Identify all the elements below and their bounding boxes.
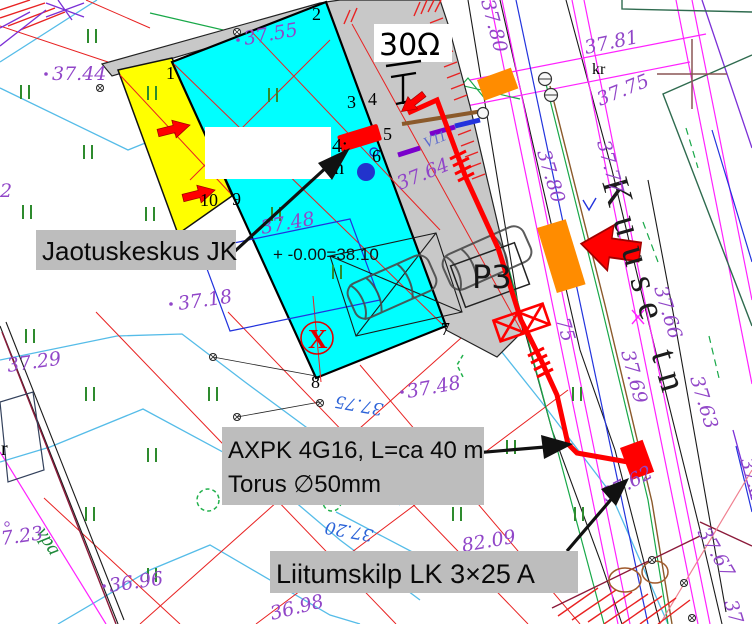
edge-fragment-2: r bbox=[1, 438, 8, 460]
corner-3: 3 bbox=[347, 92, 356, 112]
corner-10: 10 bbox=[200, 190, 218, 210]
elevation-36-96: 36.96 bbox=[108, 568, 165, 597]
label-axpk: AXPK 4G16, L=ca 40 m Torus ∅50mm bbox=[222, 427, 484, 505]
parking-label: P3 bbox=[472, 258, 512, 296]
x-marker-text: X bbox=[308, 324, 328, 354]
corner-5: 5 bbox=[383, 124, 392, 144]
street-name: Kuuse tn bbox=[593, 173, 697, 408]
redaction-box bbox=[205, 127, 331, 179]
edge-fragment: 2 bbox=[0, 180, 12, 202]
elevation-37-63-b: 37.63 bbox=[735, 455, 752, 513]
corner-1: 1 bbox=[166, 63, 175, 83]
axpk-line1-text: AXPK 4G16, L=ca 40 m bbox=[228, 437, 483, 464]
floor-level-text: + -0.00=38.10 bbox=[273, 245, 379, 264]
duct-marker-mid bbox=[537, 219, 586, 293]
grounding-resistance-text: 30Ω bbox=[379, 28, 440, 63]
axpk-line2-text: Torus ∅50mm bbox=[228, 471, 381, 498]
site-plan-drawing: Kuuse tn 30Ω P3 X + -0.00=38.10 kr V11 v… bbox=[0, 0, 752, 624]
crosshair-symbol bbox=[657, 39, 727, 109]
elevation-37-18: 37.18 bbox=[177, 286, 234, 315]
note-37-20-blue: 37.20 bbox=[323, 517, 375, 545]
elevation-37-44: 37.44 bbox=[52, 63, 106, 85]
liitumiskilp-text: Liitumskilp LK 3×25 A bbox=[276, 559, 535, 589]
corner-8: 8 bbox=[311, 372, 320, 392]
elevation-37-81: 37.81 bbox=[582, 26, 640, 59]
label-jaotuskeskus: Jaotuskeskus JK bbox=[36, 230, 238, 270]
elevation-37-63-a: 37.63 bbox=[685, 373, 722, 431]
jaotuskeskus-text: Jaotuskeskus JK bbox=[42, 236, 238, 266]
elevation-fragment-75: 75 bbox=[551, 315, 579, 345]
elevation-37-48-b: 37.48 bbox=[405, 372, 462, 403]
corner-7: 7 bbox=[441, 319, 450, 339]
duct-marker-top bbox=[477, 68, 518, 101]
note-37-75-blue: 37.75 bbox=[333, 391, 384, 419]
corner-2: 2 bbox=[312, 4, 321, 24]
label-liitumiskilp: Liitumskilp LK 3×25 A bbox=[270, 551, 578, 593]
elevation-fragment-37: 37 bbox=[719, 597, 747, 624]
elevation-36-98: 36.98 bbox=[268, 590, 326, 624]
elevation-37-80-top: 37.80 bbox=[476, 0, 511, 55]
corner-9: 9 bbox=[232, 189, 241, 209]
corner-6: 6 bbox=[372, 146, 381, 166]
elevation-37-29: 37.29 bbox=[6, 348, 63, 377]
survey-star-symbol bbox=[0, 0, 84, 46]
corner-4: 4 bbox=[368, 89, 377, 109]
kr-note: kr bbox=[592, 61, 606, 78]
